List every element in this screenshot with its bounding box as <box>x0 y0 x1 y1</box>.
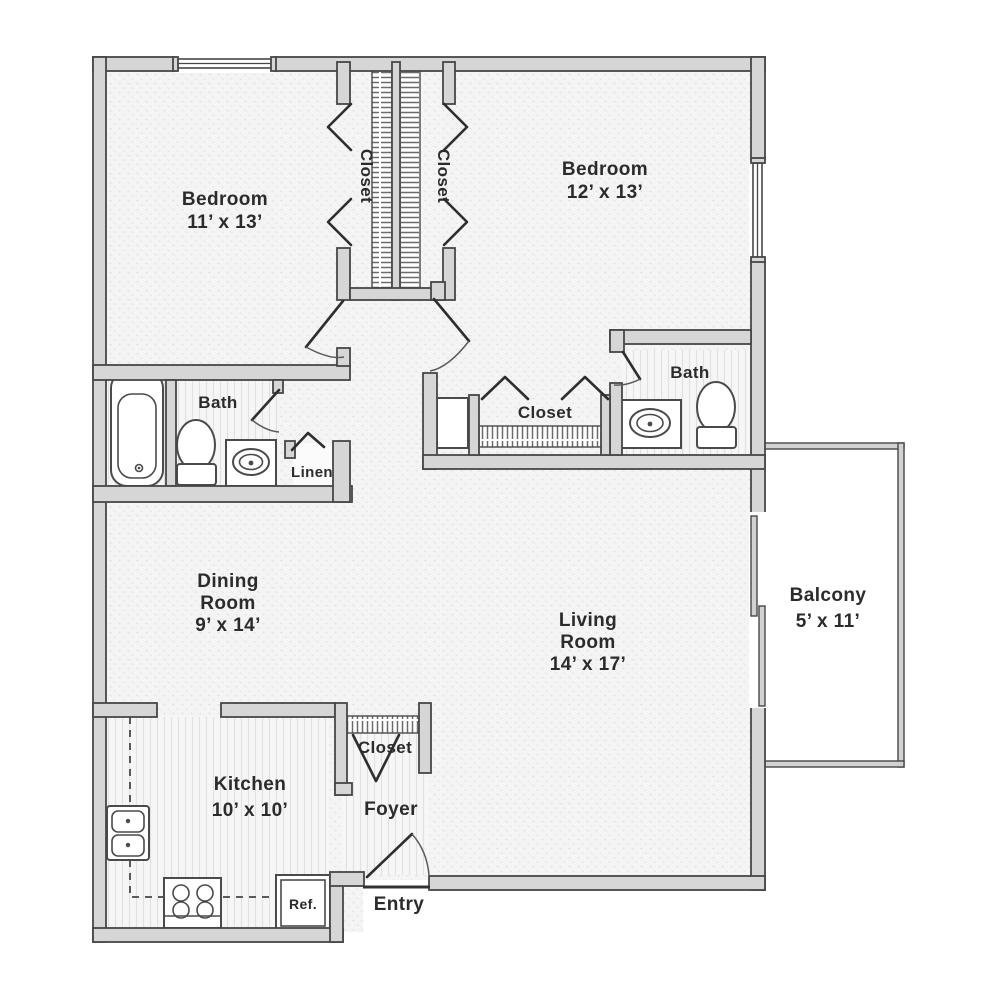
entry-label: Entry <box>374 894 425 915</box>
window-icon <box>173 55 276 73</box>
living-label-2: Room <box>560 632 615 653</box>
bedroom1-dims: 11’ x 13’ <box>187 212 262 233</box>
balcony-wall-right <box>898 443 904 767</box>
floor-plan-diagram: Bedroom 11’ x 13’ Bedroom 12’ x 13’ Clos… <box>0 0 1000 1000</box>
balcony-wall-top <box>757 443 904 449</box>
foyer-label: Foyer <box>364 799 418 820</box>
hall-closet-shelf <box>479 426 612 447</box>
balcony-label: Balcony <box>790 585 867 606</box>
sink-icon <box>226 440 276 486</box>
dining-label-1: Dining <box>197 571 259 592</box>
toilet-icon <box>177 420 216 485</box>
bedroom2-dims: 12’ x 13’ <box>567 182 644 203</box>
closet-right-label: Closet <box>434 149 453 203</box>
window-icon <box>749 158 767 262</box>
balcony-wall-bottom <box>757 761 904 767</box>
sink-icon <box>621 400 681 448</box>
utility-box <box>437 398 468 448</box>
bathtub-icon <box>111 372 163 486</box>
closet-rod-right <box>400 68 420 288</box>
floor-plan-page: Bedroom 11’ x 13’ Bedroom 12’ x 13’ Clos… <box>0 0 1000 1000</box>
refrigerator-label: Ref. <box>289 896 317 912</box>
linen-label: Linen <box>291 464 333 481</box>
stove-icon <box>164 878 221 928</box>
sliding-door-icon <box>749 512 767 708</box>
bedroom1-label: Bedroom <box>182 189 268 210</box>
bath-right-label: Bath <box>670 363 709 382</box>
hall-closet-label: Closet <box>518 403 572 422</box>
bath-left-label: Bath <box>198 393 237 412</box>
living-dims: 14’ x 17’ <box>550 654 627 675</box>
dining-label-2: Room <box>200 593 255 614</box>
closet-left-label: Closet <box>357 149 376 203</box>
dining-dims: 9’ x 14’ <box>195 615 261 636</box>
balcony-dims: 5’ x 11’ <box>796 611 861 632</box>
kitchen-sink-icon <box>103 806 149 860</box>
kitchen-label: Kitchen <box>214 774 286 795</box>
foyer-closet-label: Closet <box>358 738 412 757</box>
kitchen-dims: 10’ x 10’ <box>212 800 289 821</box>
foyer-closet-shelf <box>347 716 419 733</box>
living-label-1: Living <box>559 610 617 631</box>
bedroom2-label: Bedroom <box>562 159 648 180</box>
toilet-icon <box>697 382 736 448</box>
